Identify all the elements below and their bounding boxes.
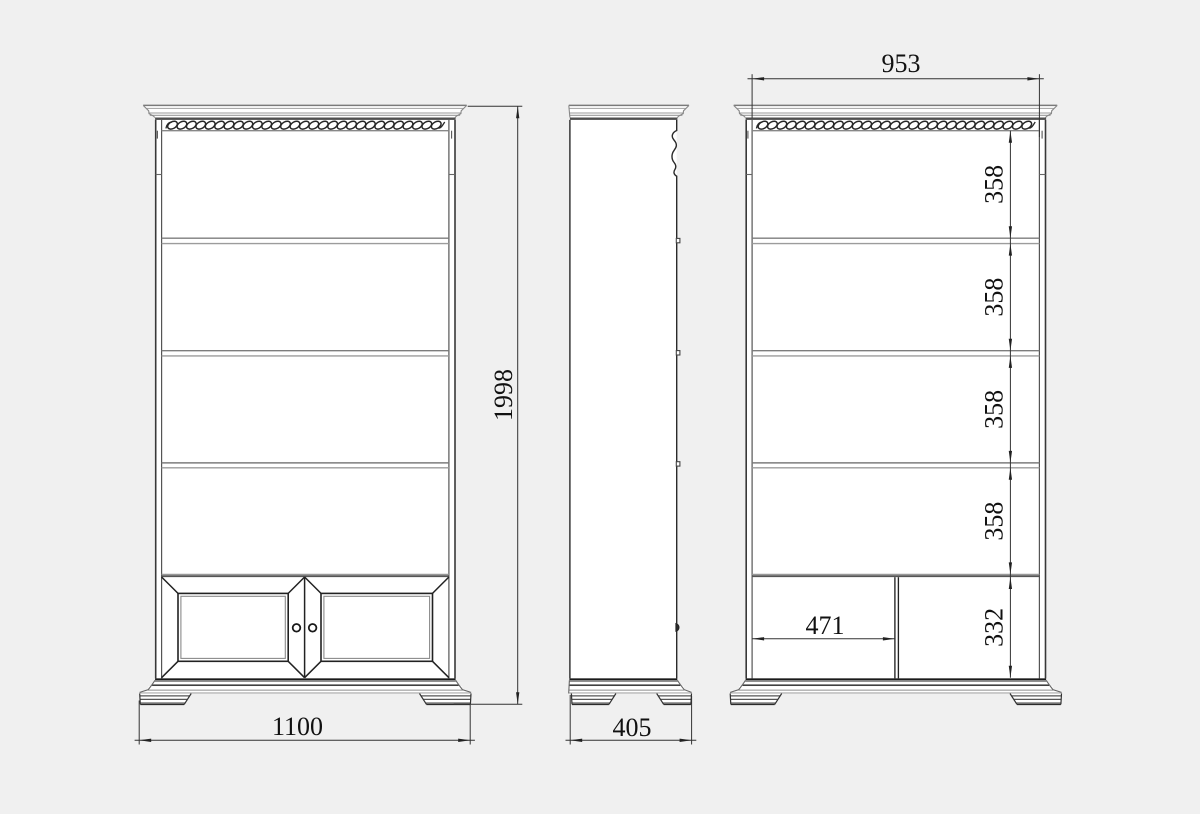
- svg-text:358: 358: [979, 390, 1008, 429]
- svg-text:1100: 1100: [272, 712, 323, 741]
- svg-text:358: 358: [979, 165, 1008, 204]
- svg-text:953: 953: [882, 49, 921, 78]
- svg-text:471: 471: [806, 611, 845, 640]
- svg-text:332: 332: [979, 608, 1008, 647]
- svg-text:358: 358: [979, 278, 1008, 317]
- svg-text:358: 358: [979, 502, 1008, 541]
- svg-text:405: 405: [613, 713, 652, 742]
- svg-text:1998: 1998: [489, 369, 518, 421]
